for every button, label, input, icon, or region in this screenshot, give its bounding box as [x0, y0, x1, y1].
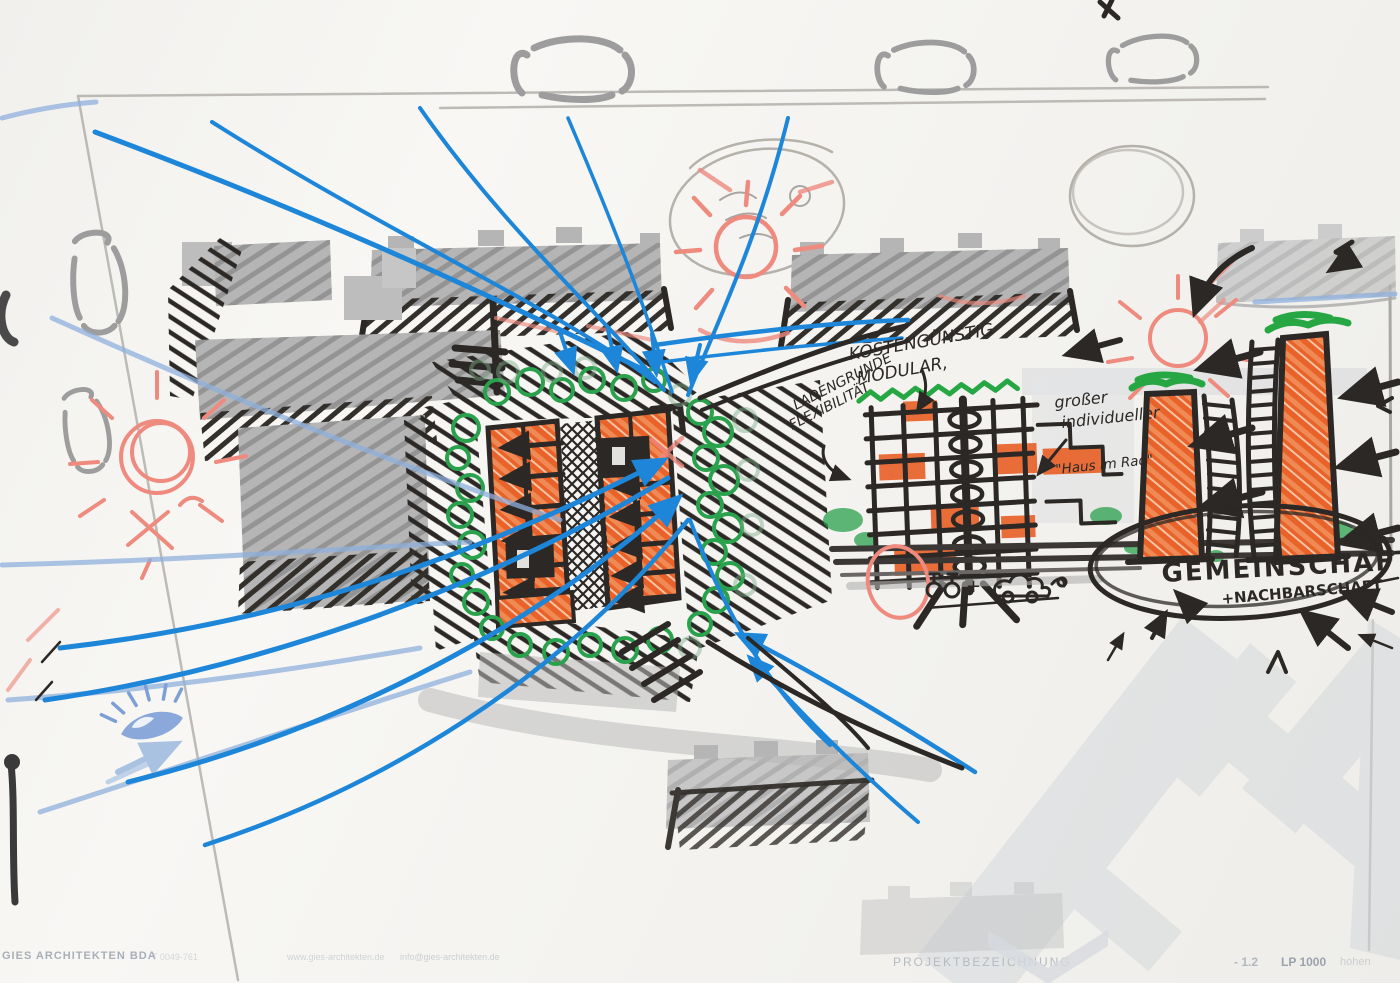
firm-phone: T 0049-761 [152, 952, 198, 962]
plus-sign: + [966, 576, 981, 597]
car-icon [514, 39, 632, 100]
sketch-sheet: + GEMEINSCHAFT +NACHBARSCHAFT KOSTENGÜN [0, 0, 1400, 983]
car-icon [69, 230, 129, 334]
car-icon [877, 42, 974, 92]
phase-suffix: hohen [1340, 956, 1371, 968]
titleblock-chevron [982, 925, 1122, 983]
firm-email: info@gies-architekten.de [400, 952, 500, 962]
phase-label: LP 1000 [1281, 955, 1326, 969]
car-icon [1107, 34, 1198, 86]
firm-name: GIES ARCHITEKTEN BDA [2, 950, 157, 962]
building-row-top-center [780, 233, 1077, 346]
edge-mark [1, 295, 14, 342]
balcony-ladder [1204, 396, 1239, 556]
sheet-number: - 1.2 [1234, 955, 1258, 969]
lamp-post-sketch [4, 754, 20, 902]
sun-icon-west [70, 372, 246, 578]
firm-website: www.gies-architekten.de [287, 952, 385, 962]
green-roof [1268, 314, 1348, 330]
concept-sketch-canvas: + GEMEINSCHAFT +NACHBARSCHAFT KOSTENGÜN [0, 0, 1400, 983]
